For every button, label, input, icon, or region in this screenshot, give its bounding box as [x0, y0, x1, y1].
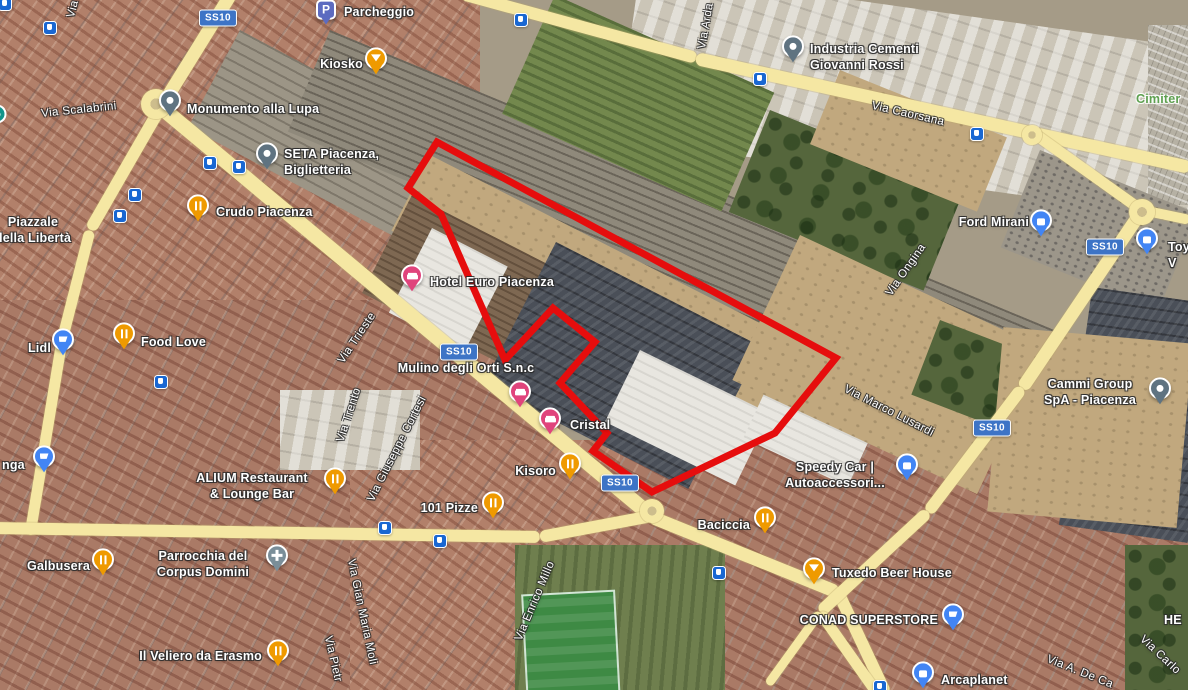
poi-label-nga[interactable]: nga	[2, 457, 25, 473]
transit-stop-icon[interactable]	[712, 566, 726, 580]
transit-stop-icon[interactable]	[203, 156, 217, 170]
church-pin-parrocchia[interactable]	[266, 544, 288, 566]
poi-label-alium[interactable]: ALIUM Restaurant & Lounge Bar	[196, 470, 308, 503]
parking-pin[interactable]: P	[316, 0, 336, 20]
restaurant-pin-food-love[interactable]	[113, 322, 135, 344]
roundabout	[1129, 199, 1155, 225]
poi-label-parrocchia[interactable]: Parrocchia del Corpus Domini	[157, 548, 249, 581]
poi-label-conad[interactable]: CONAD SUPERSTORE	[800, 612, 938, 628]
route-shield-ss10: SS10	[1086, 239, 1124, 256]
transit-stop-icon[interactable]	[43, 21, 57, 35]
poi-label-cammi[interactable]: Cammi Group SpA - Piacenza	[1044, 376, 1136, 409]
poi-label-mulino[interactable]: Mulino degli Orti S.n.c	[398, 360, 535, 376]
poi-label-ford[interactable]: Ford Mirani	[959, 214, 1029, 230]
lodging-pin-hotel-euro[interactable]	[401, 264, 423, 286]
poi-label-monumento[interactable]: Monumento alla Lupa	[187, 101, 319, 117]
poi-label-veliero[interactable]: Il Veliero da Erasmo	[139, 648, 262, 664]
poi-pin-industria[interactable]	[782, 35, 804, 57]
restaurant-pin-veliero[interactable]	[267, 639, 289, 661]
route-shield-ss10: SS10	[601, 475, 639, 492]
poi-label-hotel-euro[interactable]: Hotel Euro Piacenza	[430, 274, 554, 290]
route-shield-ss10: SS10	[199, 10, 237, 27]
poi-pin-seta[interactable]	[256, 142, 278, 164]
transit-stop-icon[interactable]	[378, 521, 392, 535]
transit-stop-icon[interactable]	[113, 209, 127, 223]
restaurant-pin-crudo[interactable]	[187, 194, 209, 216]
poi-label-seta[interactable]: SETA Piacenza, Biglietteria	[284, 146, 379, 179]
road-segment	[923, 384, 1027, 515]
road-segment	[816, 508, 932, 617]
roundabout	[640, 499, 664, 523]
restaurant-pin-galbusera[interactable]	[92, 548, 114, 570]
shopping-pin-nga[interactable]	[33, 445, 55, 467]
poi-label-tuxedo[interactable]: Tuxedo Beer House	[832, 565, 952, 581]
poi-pin-cammi[interactable]	[1149, 377, 1171, 399]
shopping-pin-toy[interactable]	[1136, 227, 1158, 249]
poi-label-galbusera[interactable]: Galbusera	[27, 558, 90, 574]
poi-label-parcheggio[interactable]: Parcheggio	[344, 4, 414, 20]
poi-label-kiosko[interactable]: Kiosko	[320, 56, 363, 72]
poi-label-speedy[interactable]: Speedy Car | Autoaccessori...	[785, 459, 885, 492]
restaurant-pin-kisoro[interactable]	[559, 452, 581, 474]
poi-label-kisoro[interactable]: Kisoro	[515, 463, 556, 479]
road-segment	[460, 0, 697, 64]
satellite-map[interactable]: P Parcheggio Kiosko Monumento alla Lupa …	[0, 0, 1188, 690]
place-label-piazzale: Piazzale della Libertà	[0, 214, 71, 247]
shopping-pin-speedy[interactable]	[896, 453, 918, 475]
cemetery-label: Cimiter	[1136, 91, 1180, 107]
shopping-pin-ford[interactable]	[1030, 209, 1052, 231]
road-segment	[539, 510, 653, 543]
lodging-pin-cristal-2[interactable]	[539, 407, 561, 429]
transit-stop-icon[interactable]	[433, 534, 447, 548]
poi-label-cristal[interactable]: Cristal	[570, 417, 610, 433]
shopping-pin-arcaplanet[interactable]	[912, 661, 934, 683]
poi-label-industria[interactable]: Industria Cementi Giovanni Rossi	[810, 41, 919, 74]
restaurant-pin-101-pizze[interactable]	[482, 491, 504, 513]
shopping-pin-lidl[interactable]	[52, 328, 74, 350]
poi-label-he: HE	[1164, 612, 1182, 628]
poi-label-food-love[interactable]: Food Love	[141, 334, 206, 350]
restaurant-pin-alium[interactable]	[324, 467, 346, 489]
poi-pin-monumento[interactable]	[159, 89, 181, 111]
transit-stop-icon[interactable]	[514, 13, 528, 27]
road-segment	[0, 522, 540, 543]
transit-stop-icon[interactable]	[873, 680, 887, 690]
transit-stop-icon[interactable]	[0, 0, 12, 11]
restaurant-pin-baciccia[interactable]	[754, 506, 776, 528]
transit-stop-icon[interactable]	[970, 127, 984, 141]
bar-pin-kiosko[interactable]	[365, 47, 387, 69]
lodging-pin-cristal-1[interactable]	[509, 380, 531, 402]
poi-label-crudo[interactable]: Crudo Piacenza	[216, 204, 313, 220]
poi-label-baciccia[interactable]: Baciccia	[698, 517, 750, 533]
road-segment	[155, 100, 657, 522]
bar-pin-tuxedo[interactable]	[803, 557, 825, 579]
poi-label-toy[interactable]: Toy V	[1168, 239, 1188, 272]
transit-stop-icon[interactable]	[232, 160, 246, 174]
road-segment	[25, 339, 68, 535]
transit-stop-icon[interactable]	[128, 188, 142, 202]
transit-stop-icon[interactable]	[753, 72, 767, 86]
route-shield-ss10: SS10	[973, 420, 1011, 437]
roundabout	[1022, 125, 1042, 145]
poi-label-lidl[interactable]: Lidl	[28, 340, 51, 356]
shopping-pin-conad[interactable]	[942, 603, 964, 625]
poi-label-101-pizze[interactable]: 101 Pizze	[421, 500, 478, 516]
poi-label-arcaplanet[interactable]: Arcaplanet	[941, 672, 1008, 688]
transit-stop-icon[interactable]	[154, 375, 168, 389]
route-shield-ss10: SS10	[440, 344, 478, 361]
